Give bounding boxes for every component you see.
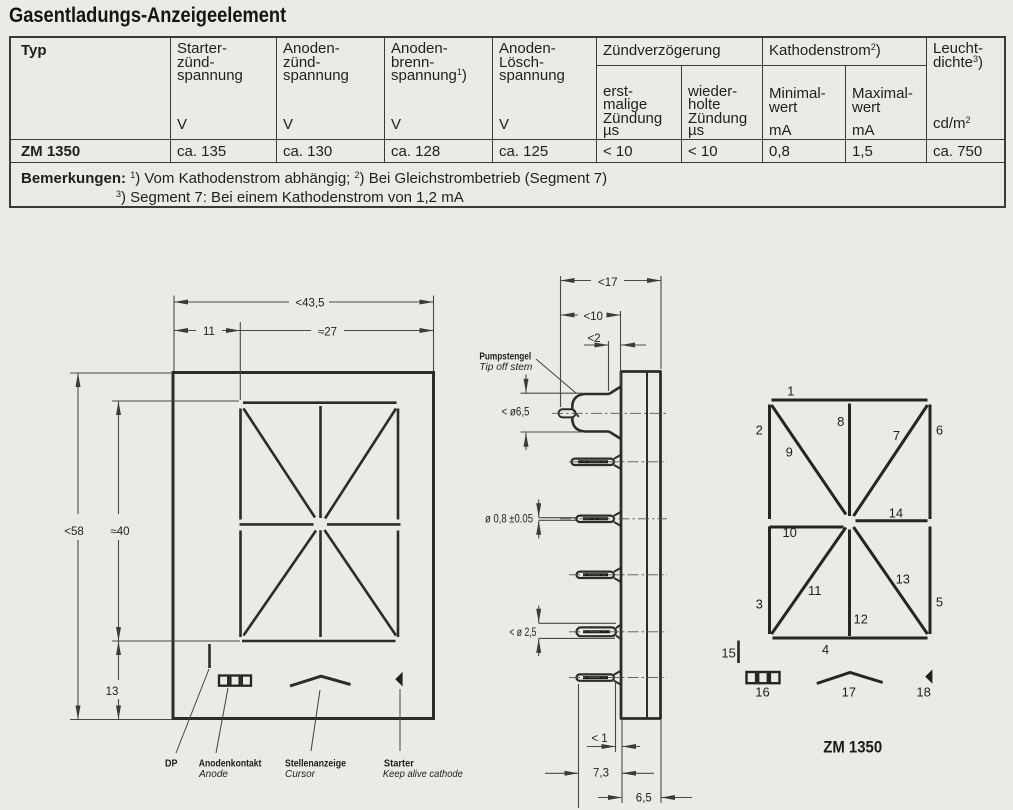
svg-text:≈40: ≈40 (110, 526, 129, 538)
svg-text:Anode: Anode (198, 768, 228, 780)
svg-text:8: 8 (837, 414, 844, 429)
svg-text:16: 16 (755, 684, 769, 699)
svg-text:13: 13 (106, 686, 119, 698)
svg-text:6,5: 6,5 (636, 793, 652, 805)
svg-text:<2: <2 (587, 333, 600, 345)
svg-text:4: 4 (822, 642, 829, 657)
svg-text:2: 2 (756, 422, 763, 437)
svg-text:DP: DP (165, 758, 178, 770)
svg-text:Keep alive cathode: Keep alive cathode (383, 768, 463, 780)
svg-text:15: 15 (721, 646, 735, 661)
svg-text:3: 3 (756, 596, 763, 611)
svg-text:13: 13 (896, 571, 910, 586)
svg-text:10: 10 (782, 525, 796, 540)
svg-text:< 1: < 1 (591, 733, 607, 745)
svg-text:ZM 1350: ZM 1350 (823, 739, 882, 757)
svg-text:< ø6,5: < ø6,5 (502, 407, 530, 419)
svg-text:18: 18 (916, 684, 930, 699)
svg-text:5: 5 (936, 594, 943, 609)
svg-text:17: 17 (842, 684, 856, 699)
svg-text:Tip off stem: Tip off stem (479, 361, 532, 373)
svg-text:6: 6 (936, 422, 943, 437)
svg-text:<43,5: <43,5 (295, 298, 324, 310)
svg-text:ø 0,8 ±0.05: ø 0,8 ±0.05 (485, 514, 533, 526)
svg-text:<58: <58 (64, 526, 84, 538)
svg-text:9: 9 (786, 445, 793, 460)
svg-text:1: 1 (787, 384, 794, 399)
svg-text:≈27: ≈27 (318, 327, 337, 339)
svg-text:< ø 2,5: < ø 2,5 (509, 627, 536, 639)
svg-text:<10: <10 (583, 311, 603, 323)
svg-text:11: 11 (203, 326, 215, 338)
svg-text:7,3: 7,3 (593, 768, 609, 780)
svg-text:12: 12 (853, 612, 867, 627)
svg-text:11: 11 (808, 583, 822, 598)
svg-text:7: 7 (893, 428, 900, 443)
svg-text:<17: <17 (598, 277, 618, 289)
svg-text:14: 14 (889, 506, 903, 521)
svg-text:Cursor: Cursor (285, 768, 315, 780)
